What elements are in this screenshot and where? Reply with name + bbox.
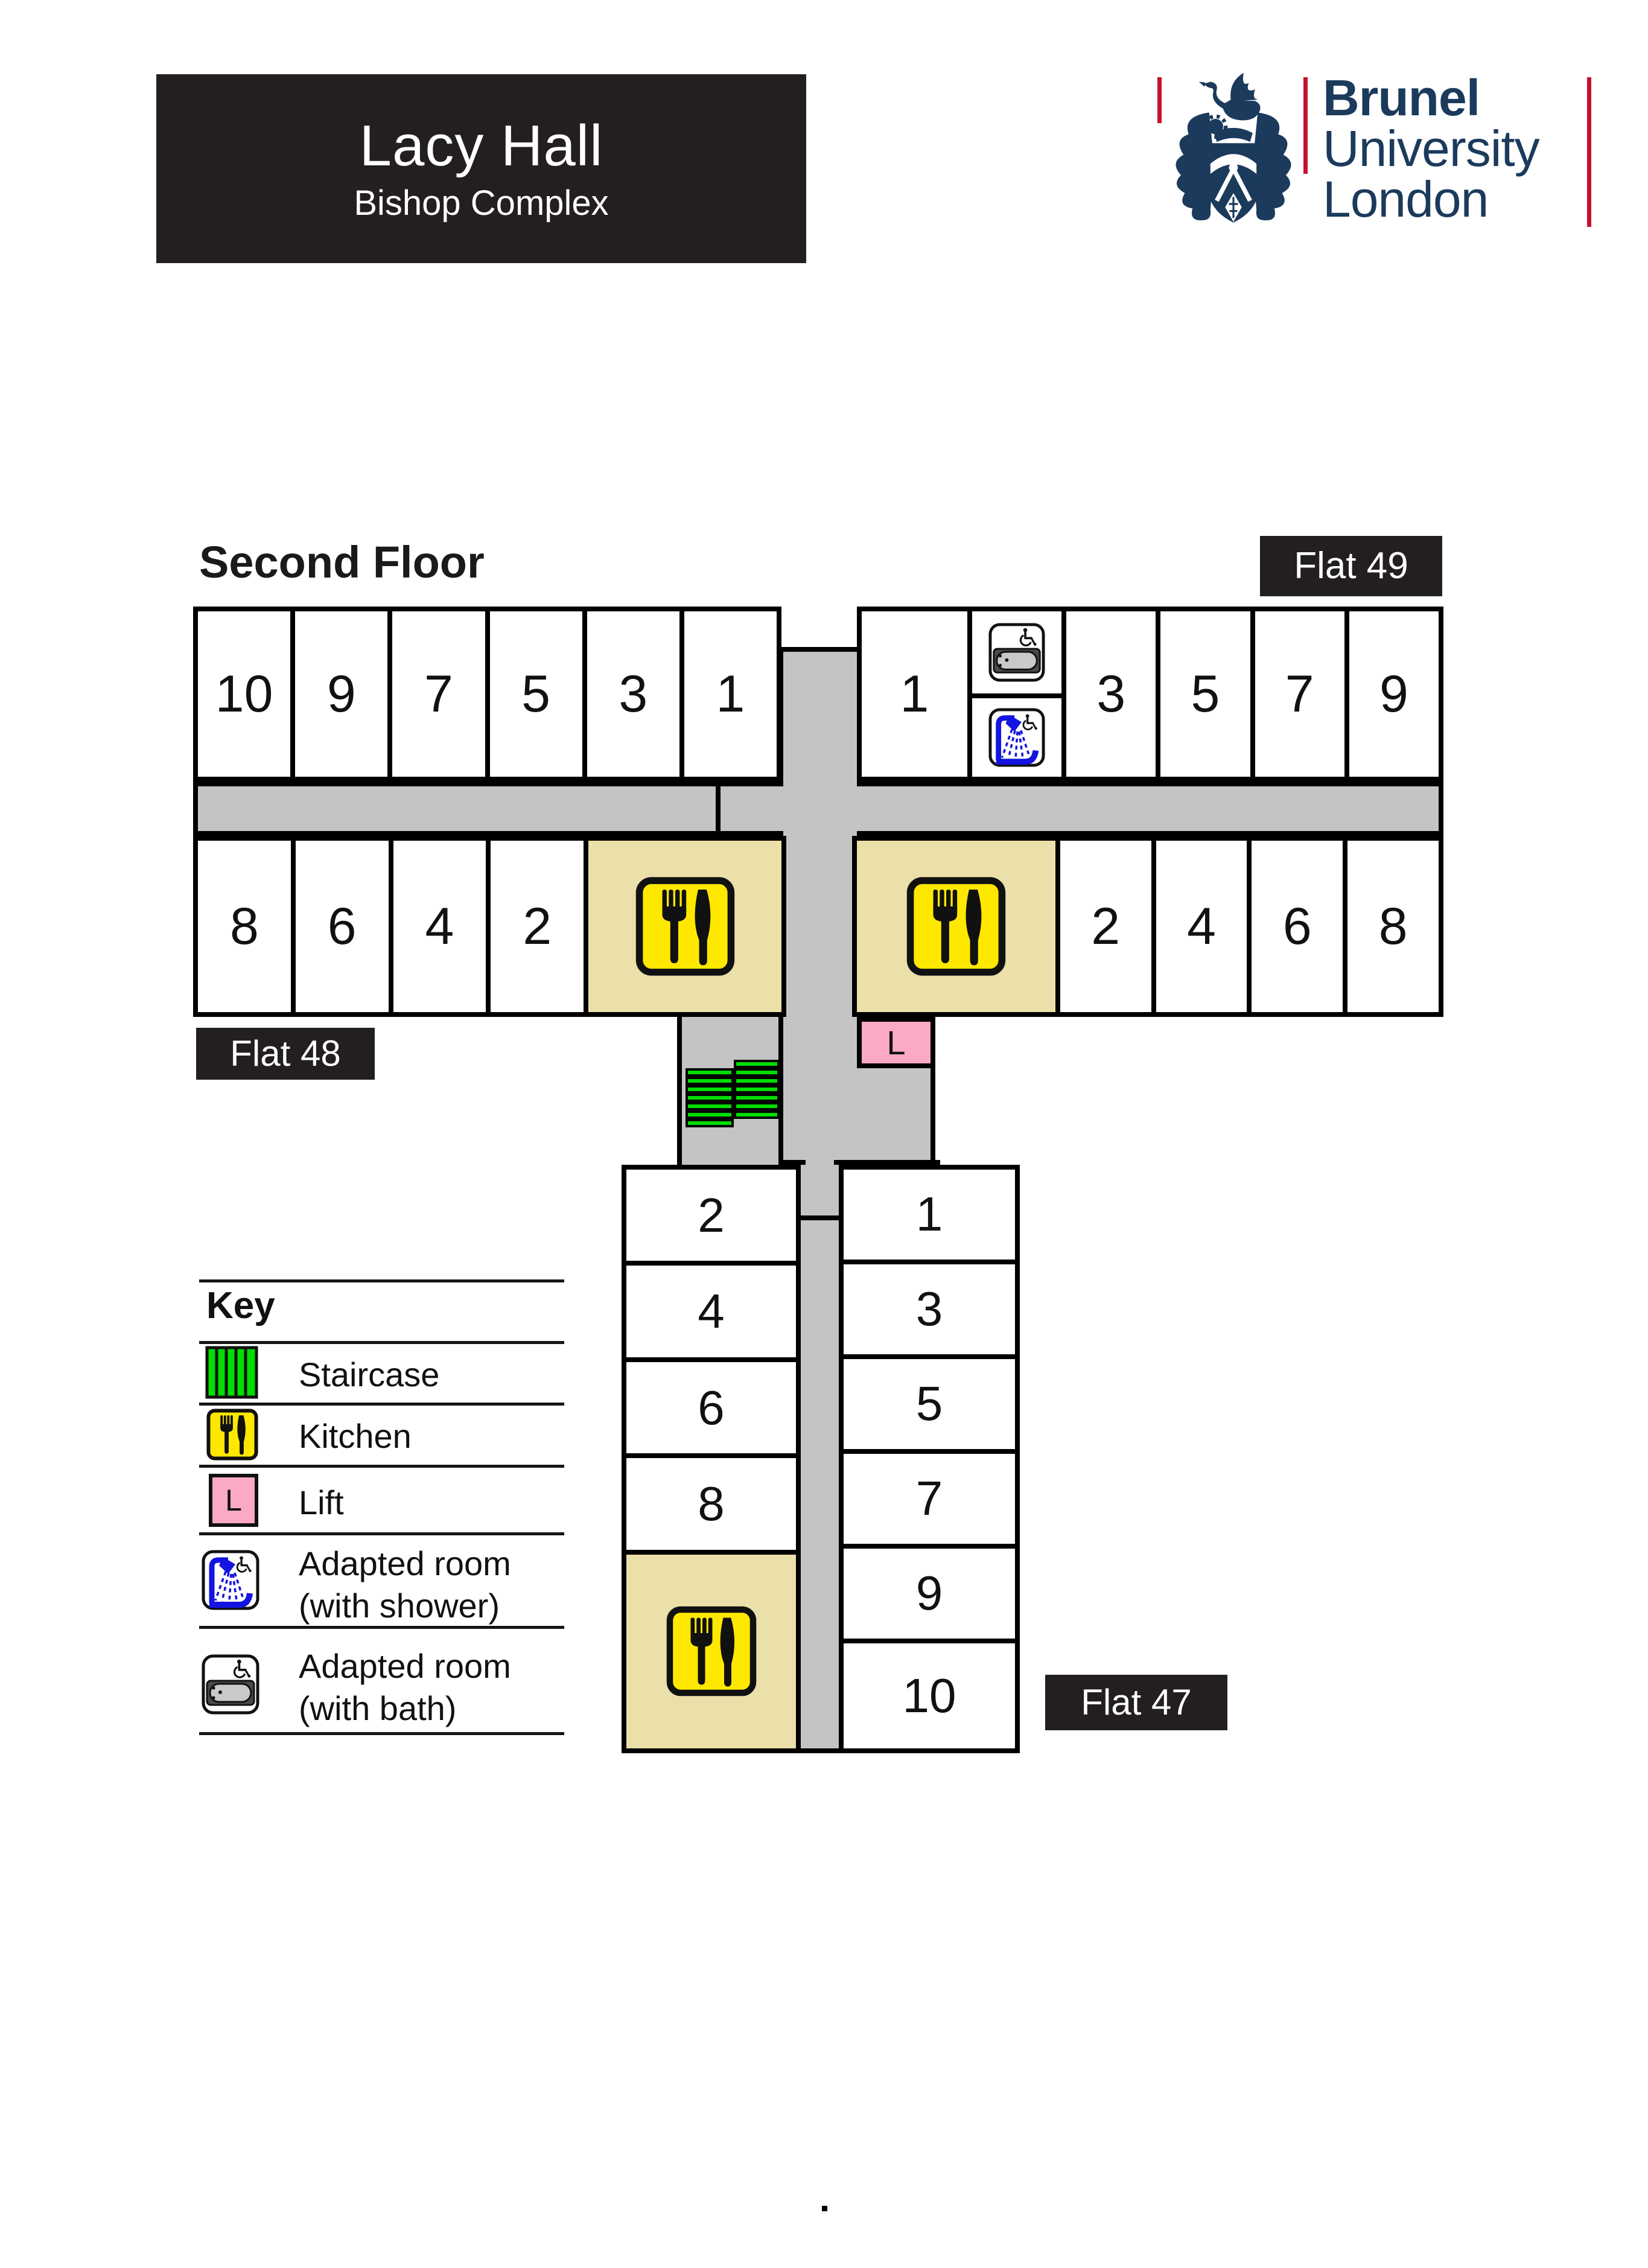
divider <box>199 1732 564 1735</box>
wheelchair-shower-icon <box>988 707 1045 768</box>
wall-segment <box>834 1160 940 1165</box>
divider <box>199 1279 564 1282</box>
adapted-room-with-shower <box>972 698 1061 777</box>
flat47-right-column: 1 3 5 7 9 10 <box>839 1165 1020 1753</box>
room: 2 <box>1060 841 1151 1012</box>
brunel-crest-icon <box>1169 68 1297 234</box>
corridor-divider <box>716 786 721 831</box>
room: 5 <box>1160 611 1250 777</box>
lift-legend-icon: L <box>209 1474 258 1527</box>
room: 9 <box>844 1549 1015 1639</box>
logo-line-university: University <box>1323 123 1582 174</box>
corridor-divider <box>801 1215 839 1220</box>
label-line: (with bath) <box>299 1687 511 1730</box>
room: 4 <box>626 1266 796 1357</box>
flat48-bottom-row: 8 6 4 2 <box>193 836 786 1017</box>
key-adapted-bath-label: Adapted room (with bath) <box>299 1645 511 1730</box>
adapted-shower-legend-icon <box>202 1540 259 1620</box>
logo-red-bar-middle <box>1303 77 1308 174</box>
lift: L <box>857 1017 935 1068</box>
room: 10 <box>844 1643 1015 1748</box>
room: 6 <box>296 841 389 1012</box>
wall-segment <box>931 1063 935 1165</box>
logo-red-bar-left <box>1157 77 1162 123</box>
lift-letter: L <box>886 1023 905 1062</box>
label-line: Adapted room <box>299 1543 511 1585</box>
lift-letter: L <box>225 1483 242 1518</box>
kitchen-icon <box>906 875 1006 978</box>
logo-line-london: London <box>1323 174 1582 225</box>
wall-segment <box>801 1748 839 1753</box>
room: 8 <box>1347 841 1439 1012</box>
flat49-corridor <box>857 782 1443 836</box>
wall-segment <box>677 1012 682 1170</box>
room: 4 <box>1156 841 1247 1012</box>
key-lift-label: Lift <box>299 1486 344 1520</box>
room: 6 <box>626 1362 796 1453</box>
room: 9 <box>295 611 387 777</box>
staircase-legend-icon <box>205 1346 258 1399</box>
kitchen-icon <box>635 875 735 978</box>
hall-title: Lacy Hall <box>360 117 603 175</box>
key-kitchen-label: Kitchen <box>299 1419 412 1453</box>
page-mark <box>822 2206 827 2211</box>
divider <box>199 1403 564 1406</box>
adapted-bath-legend-icon <box>202 1643 259 1726</box>
flat-48-label: Flat 48 <box>196 1028 375 1080</box>
flat48-corridor <box>193 782 783 836</box>
room: 8 <box>198 841 291 1012</box>
room: 6 <box>1252 841 1343 1012</box>
floor-title: Second Floor <box>199 540 485 585</box>
complex-subtitle: Bishop Complex <box>354 186 608 221</box>
divider <box>199 1532 564 1535</box>
wheelchair-bath-icon <box>988 622 1045 683</box>
room: 1 <box>684 611 777 777</box>
room: 7 <box>392 611 485 777</box>
wall-segment <box>778 647 862 652</box>
kitchen-icon <box>664 1606 759 1696</box>
room: 3 <box>587 611 679 777</box>
flat48-top-row: 10 9 7 5 3 1 <box>193 607 781 782</box>
corridor-junction <box>783 786 857 831</box>
room: 9 <box>1349 611 1439 777</box>
room: 2 <box>626 1170 796 1261</box>
room: 4 <box>393 841 486 1012</box>
room: 3 <box>844 1264 1015 1354</box>
key-staircase-label: Staircase <box>299 1358 439 1392</box>
room: 3 <box>1066 611 1156 777</box>
flat49-bottom-row: 2 4 6 8 <box>852 836 1443 1017</box>
room: 1 <box>862 611 967 777</box>
label-line: Adapted room <box>299 1645 511 1687</box>
flat47-kitchen <box>626 1555 796 1748</box>
room: 5 <box>490 611 582 777</box>
central-corridor <box>783 652 857 1165</box>
room: 7 <box>844 1454 1015 1544</box>
wall-segment <box>778 652 783 786</box>
flat49-adapted-rooms <box>972 611 1061 777</box>
flat47-left-column: 2 4 6 8 <box>622 1165 801 1753</box>
lift-lobby-area <box>857 1068 935 1165</box>
flat48-kitchen <box>588 841 781 1012</box>
divider <box>199 1341 564 1344</box>
lower-corridor <box>801 1165 839 1753</box>
room: 5 <box>844 1359 1015 1449</box>
logo-brand: Brunel <box>1323 72 1582 123</box>
adapted-room-with-bath <box>972 611 1061 693</box>
room: 2 <box>491 841 584 1012</box>
staircase-icon <box>682 1017 783 1165</box>
room: 1 <box>844 1170 1015 1260</box>
logo-red-bar-right <box>1587 77 1591 227</box>
flat49-top-row: 1 3 5 7 9 <box>857 607 1443 782</box>
label-line: (with shower) <box>299 1585 511 1627</box>
flat49-kitchen <box>857 841 1055 1012</box>
kitchen-legend-icon <box>206 1409 258 1461</box>
flat-49-label: Flat 49 <box>1260 536 1442 596</box>
logo-text: Brunel University London <box>1323 72 1582 225</box>
room: 8 <box>626 1458 796 1549</box>
wall-segment <box>857 652 862 786</box>
key-heading: Key <box>206 1287 275 1325</box>
title-block: Lacy Hall Bishop Complex <box>156 74 806 263</box>
room: 10 <box>198 611 290 777</box>
floor-plan-page: Lacy Hall Bishop Complex Brunel Universi… <box>0 0 1648 2268</box>
key-adapted-shower-label: Adapted room (with shower) <box>299 1543 511 1627</box>
flat-47-label: Flat 47 <box>1045 1675 1227 1730</box>
divider <box>199 1465 564 1468</box>
divider <box>199 1626 564 1629</box>
room: 7 <box>1255 611 1344 777</box>
